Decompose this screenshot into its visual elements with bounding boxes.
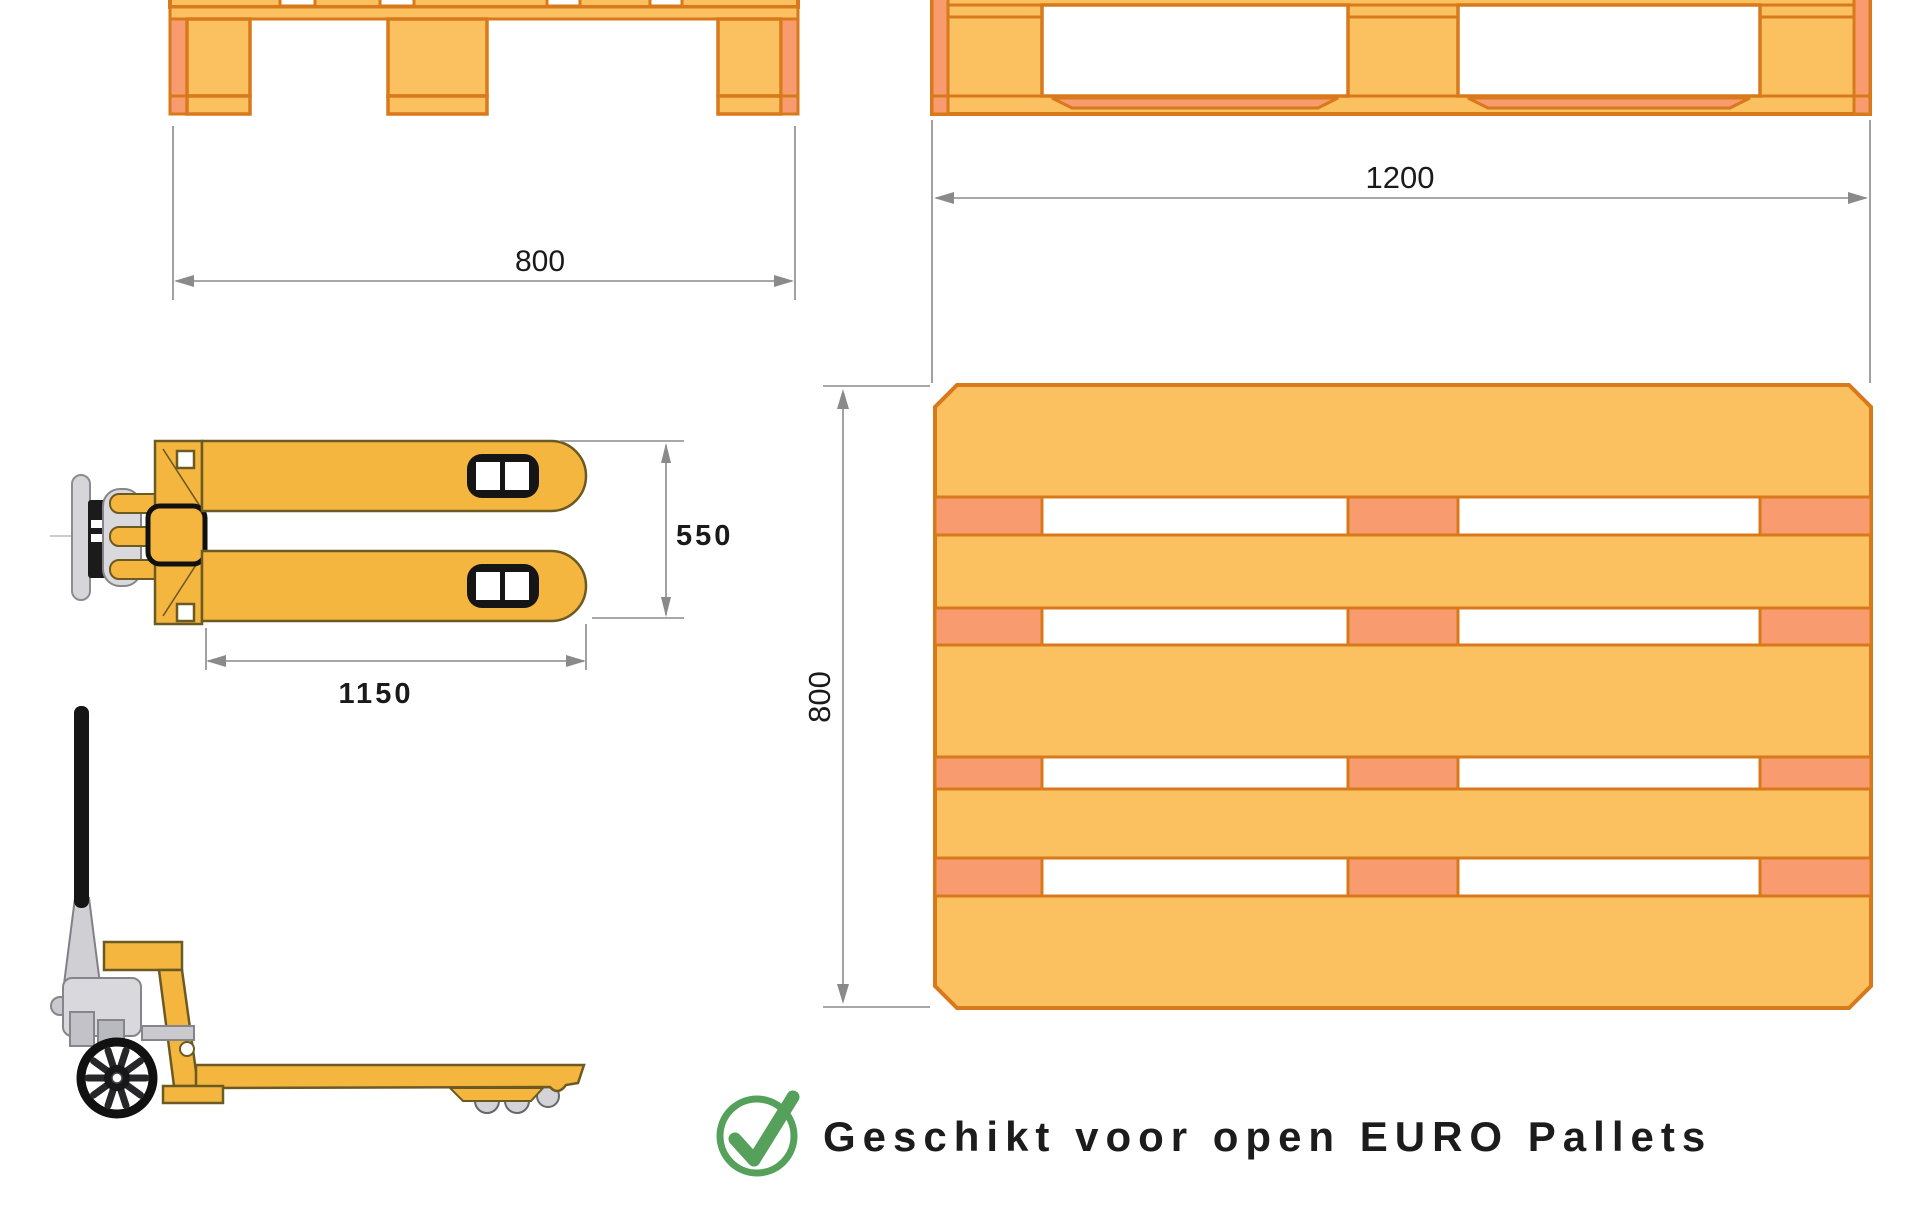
pallet-side-view	[932, 0, 1870, 114]
truck-handle-side-view	[74, 706, 89, 908]
dimension-label-800-width: 800	[515, 245, 565, 278]
dimension-pallet-side-length: 1200	[932, 120, 1870, 383]
pallet-truck-dimensions-diagram: 800 1200	[0, 0, 1920, 1229]
suitability-caption: Geschikt voor open EURO Pallets	[720, 1097, 1712, 1173]
block-row	[935, 858, 1871, 896]
truck-handle-top-view	[72, 475, 90, 600]
dimension-fork-length: 1150	[206, 624, 586, 710]
dimension-label-1150-fork-length: 1150	[339, 678, 414, 710]
dimension-label-1200-length: 1200	[1366, 160, 1435, 195]
dimension-label-550-fork-width: 550	[676, 520, 733, 552]
pallet-truck-side-view	[51, 706, 584, 1114]
steering-wheel	[81, 1042, 153, 1114]
dimension-label-800-depth: 800	[802, 671, 837, 723]
fork-heel	[163, 1086, 223, 1103]
fork-roller-slots	[467, 454, 539, 608]
pivot-hole	[180, 1042, 194, 1056]
caption-text: Geschikt voor open EURO Pallets	[823, 1113, 1712, 1160]
block-row	[935, 497, 1871, 535]
pallet-top-view	[935, 385, 1871, 1008]
hydraulic-clamp	[148, 506, 205, 564]
hydraulic-pump	[51, 898, 141, 1050]
checkmark-icon	[720, 1097, 794, 1173]
block-row	[935, 757, 1871, 789]
truck-neck	[104, 942, 182, 970]
pallet-end-view	[170, 0, 798, 114]
dimension-pallet-top-depth: 800	[802, 386, 930, 1007]
diagram-canvas: 800 1200	[0, 0, 1920, 1229]
pallet-truck-top-view	[50, 441, 586, 624]
fork-arm-side	[196, 1065, 584, 1091]
dimension-pallet-end-width: 800	[173, 126, 795, 300]
block-row	[935, 608, 1871, 645]
